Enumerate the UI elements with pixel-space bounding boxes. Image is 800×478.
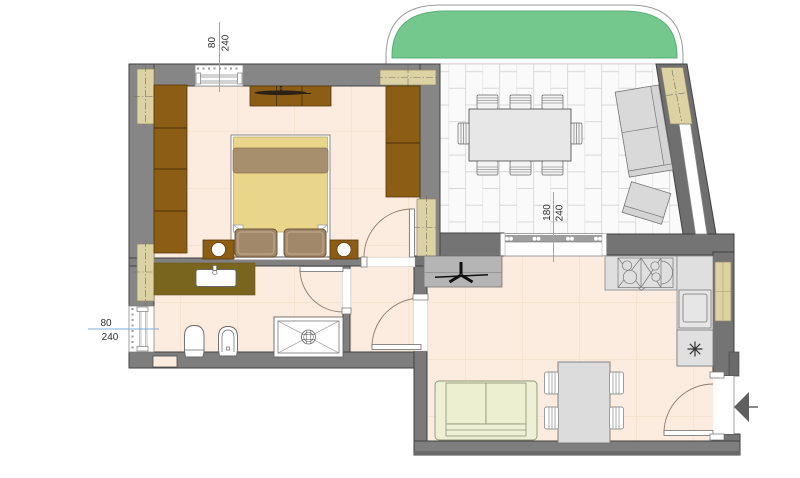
svg-text:80: 80 [100, 318, 112, 329]
svg-text:180: 180 [542, 204, 553, 221]
svg-text:240: 240 [221, 34, 232, 51]
svg-text:80: 80 [207, 37, 218, 49]
svg-text:240: 240 [555, 204, 566, 221]
svg-text:240: 240 [102, 332, 119, 343]
